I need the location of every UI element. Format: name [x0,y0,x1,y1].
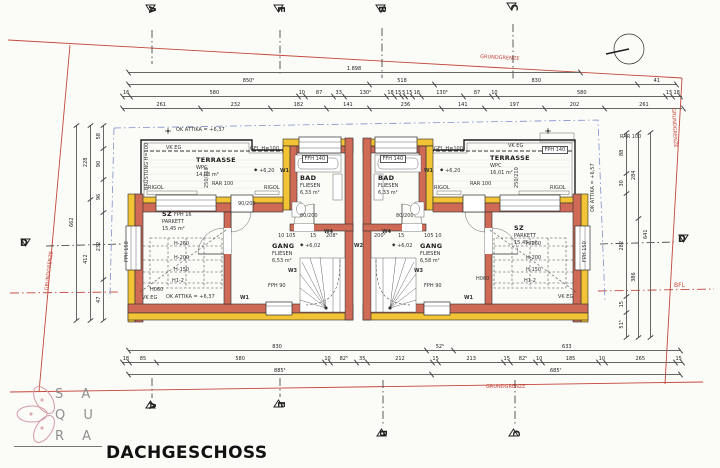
height-label-h200: H-200 [526,255,541,261]
height-label-h060: H060 [476,276,489,282]
vk-eg-label: VK EG [166,145,181,151]
window-label-fph90: FPH 90 [268,283,286,289]
mini-dim: 105 10 [424,233,442,239]
section-letter: E [275,401,286,408]
door-size-90: 90/200 [238,201,256,207]
section-triangle-icon [20,238,31,247]
height-label-h12: H1-2 [524,278,536,284]
height-label-h12: H1-2 [172,278,184,284]
room-finish: FLIESEN [420,251,442,258]
room-name: SZ [514,224,537,233]
level-marker-icon: ◆ [300,243,303,248]
dim-chain-top-total: 1.898 [128,64,580,73]
section-marker-d-right: D [678,234,686,245]
survey-cross-icon [165,128,171,134]
window-label-ffh140: FFH 140 [380,155,406,163]
height-label-h260: H-260 [526,241,541,247]
room-area: 14,06 m² [196,172,236,179]
grundgrenze-label-bottom: GRUNDGRENZE [486,384,525,390]
room-area: 16,01 m² [490,170,530,177]
section-triangle-icon [273,4,284,13]
window-fph16 [156,195,216,211]
dim-chain-bottom-3: 885⁵685⁷ [128,366,680,375]
room-name: BAD [378,174,398,183]
room-area: 6,58 m² [420,258,442,265]
north-indicator-icon [606,34,644,64]
room-finish: FLIESEN [272,251,294,258]
level-620-right: ◆ +6,20 [440,168,460,174]
floor-plan-sheet: 1.898 850⁵51883041 16580108733130⁵181551… [0,0,720,468]
section-triangle-icon [678,234,689,243]
logo-line: S A [55,385,100,406]
dim-chain-left-1: 662 [68,125,77,320]
section-marker-c-top: C [506,2,520,13]
room-area: 6,53 m² [272,258,294,265]
section-marker-a-bottom: A [145,400,159,411]
logo-letters: S A Q U R A [55,385,100,447]
room-finish: PARKETT [162,219,185,226]
window-ffh140 [299,137,341,153]
level-602-right: ◆ +6,02 [392,243,412,249]
room-label-gang-right: GANG FLIESEN 6,58 m² [420,242,442,264]
section-letter: A [146,402,157,409]
section-letter: C [509,430,520,437]
bfl-line-right [598,289,714,291]
room-label-gang-left: GANG FLIESEN 6,53 m² [272,242,294,264]
level-marker-icon: ◆ [440,168,443,173]
dim-chain-right-3: 88302821551⁵ [618,132,627,337]
rar-label: RAR 100 [620,134,641,140]
dim-chain-left-2: 228412 [82,125,91,320]
section-marker-a-top: A [145,4,159,15]
rigol-channel [255,191,279,195]
level-value: +6,02 [397,243,412,249]
wmark-w1: W1 [464,295,473,301]
logo-line: R A [55,427,100,448]
room-label-bad-left: BAD FLIESEN 6,33 m² [300,174,320,196]
window-fph90 [266,302,292,315]
gel-label: GEL H=100 [250,146,279,152]
wmark-w1: W1 [424,168,433,174]
rigol-label: RIGOL [264,185,280,191]
room-finish: FLIESEN [378,183,398,190]
section-triangle-icon [506,2,517,11]
section-letter: B [378,430,389,437]
room-finish: PARKETT [514,233,537,240]
vk-eg-label: VK EG [558,294,573,300]
room-name: BAD [300,174,320,183]
room-name: GANG [420,242,442,251]
level-620-left: ◆ +6,20 [254,168,274,174]
bfl-label: BFL [674,282,685,289]
level-marker-icon: ◆ [392,243,395,248]
height-label-h150: H-150 [526,267,541,273]
door-size-80: 80/200 [396,213,414,219]
dim-chain-right-1: 641 [642,132,651,337]
wmark-w3: W3 [414,268,423,274]
room-name: TERRASSE [196,156,236,165]
dim-chain-top-3: 16580108733130⁵181551518130⁵87105801518 [122,88,682,97]
bfl-line-left [10,292,121,293]
rigol-label: RIGOL [550,185,566,191]
dim-chain-top-2: 850⁵51883041 [128,76,676,85]
dim-chain-top-4: 261232182141236141197202261 [122,100,682,109]
dim-chain-bottom-1: 83052⁵633 [128,342,680,351]
dim-chain-bottom-2: 18855801082⁵35212152131582⁵101851026515 [122,354,682,363]
vk-eg-label: VK EG [142,295,157,301]
level-value: +6,20 [445,168,460,174]
mini-dim: 208⁵ [326,233,338,239]
mini-dim: 200⁵ [374,233,386,239]
gel-label: GEL H=100 [434,146,463,152]
level-marker-icon: ◆ [254,168,257,173]
bruestung-label: BRÜSTUNG H=100 [144,143,150,190]
height-label-h150: H-150 [174,267,189,273]
room-label-terrasse-right: TERRASSE WPC 16,01 m² [490,154,530,176]
section-triangle-icon [145,4,156,13]
height-label-h260: H-260 [174,241,189,247]
staircase [300,257,345,312]
rar-label: RAR 100 [212,181,233,187]
window-label-fph16: FPH 16 [174,212,192,218]
room-label-terrasse-left: TERRASSE WPC 14,06 m² [196,156,236,178]
room-finish: WPC [490,163,530,170]
room-finish: WPC [196,165,236,172]
window-label-fph140: FPH 140 [542,146,568,154]
level-value: +6,02 [305,243,320,249]
section-marker-c-bottom: C [508,428,522,439]
ok-attika-label-bottom: OK ATTIKA = +6,37 [166,294,215,300]
room-name: TERRASSE [490,154,530,163]
door-size-250: 250/210 [204,167,210,188]
room-label-bad-right: BAD FLIESEN 6,33 m² [378,174,398,196]
wmark-w1: W1 [280,168,289,174]
level-value: +6,20 [259,168,274,174]
vk-eg-label: VK EG [508,143,523,149]
logo-line: Q U [55,406,100,427]
section-marker-e-bottom: E [273,399,287,410]
room-area: 6,33 m² [300,190,320,197]
title-rule [14,446,102,447]
section-marker-d-left: D [20,238,28,249]
section-triangle-icon [375,4,386,13]
room-area: 6,33 m² [378,190,398,197]
room-area: 15,45 m² [162,226,185,233]
door-size-250: 250/210 [514,167,520,188]
section-marker-b-bottom: B [376,428,390,439]
rigol-label: RIGOL [148,185,164,191]
door-size-80: 80/200 [300,213,318,219]
section-marker-b-top: B [375,4,389,15]
window-label-fph90: FPH 90 [424,283,442,289]
height-label-h060: H060 [150,287,163,293]
mini-dim: 15 [310,233,316,239]
height-label-h200: H-200 [174,255,189,261]
wmark-w1: W1 [240,295,249,301]
window-label-fph150: FPH 150 [124,241,130,262]
door-swing-arc [231,212,251,232]
window-label-fph150: FPH 150 [582,241,588,262]
mini-dim: 15 [398,233,404,239]
rigol-label: RIGOL [434,185,450,191]
rar-label: RAR 100 [470,181,491,187]
mini-dim: 10 105 [278,233,296,239]
dim-chain-right-2: 284386 [630,132,639,337]
dim-chain-left-3: 58909623247 [95,125,104,320]
room-finish: FLIESEN [300,183,320,190]
room-name: GANG [272,242,294,251]
rigol-channel [147,191,197,195]
wmark-w2: W2 [354,243,363,249]
level-602-left: ◆ +6,02 [300,243,320,249]
window-label-ffh140: FFH 140 [302,155,328,163]
ok-attika-label-right: OK ATTIKA = +6,57 [590,163,596,212]
section-marker-e-top: E [273,4,287,15]
drawing-title: DACHGESCHOSS [106,443,267,463]
ok-attika-label-top: OK ATTIKA = +6,37 [176,127,225,133]
wmark-w3: W3 [288,268,297,274]
